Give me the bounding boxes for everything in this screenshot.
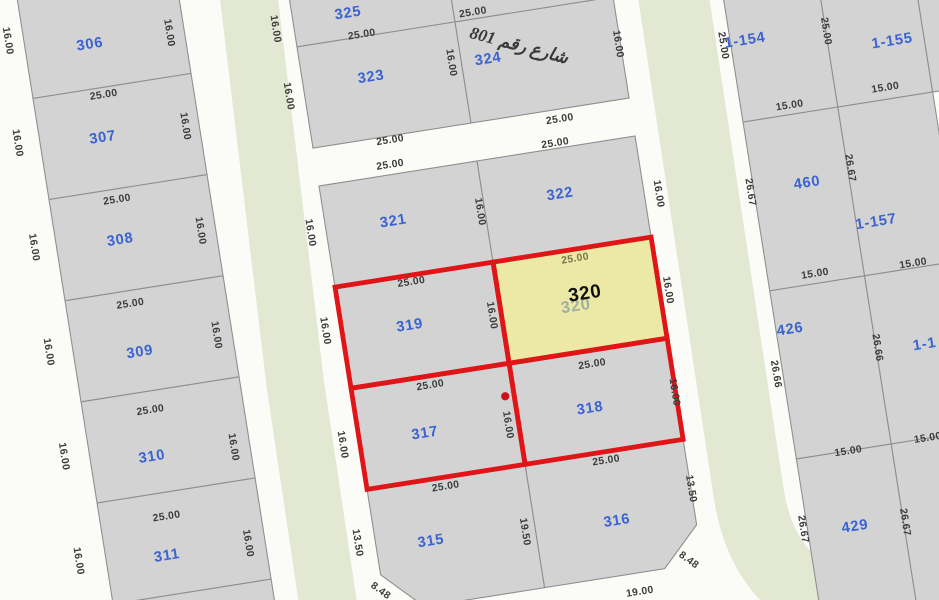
map-viewport[interactable]: 25.0025.0025.0025.0025.0025.0025.0025.00… (0, 0, 939, 600)
cadastral-map[interactable]: 25.0025.0025.0025.0025.0025.0025.0025.00… (0, 0, 939, 600)
